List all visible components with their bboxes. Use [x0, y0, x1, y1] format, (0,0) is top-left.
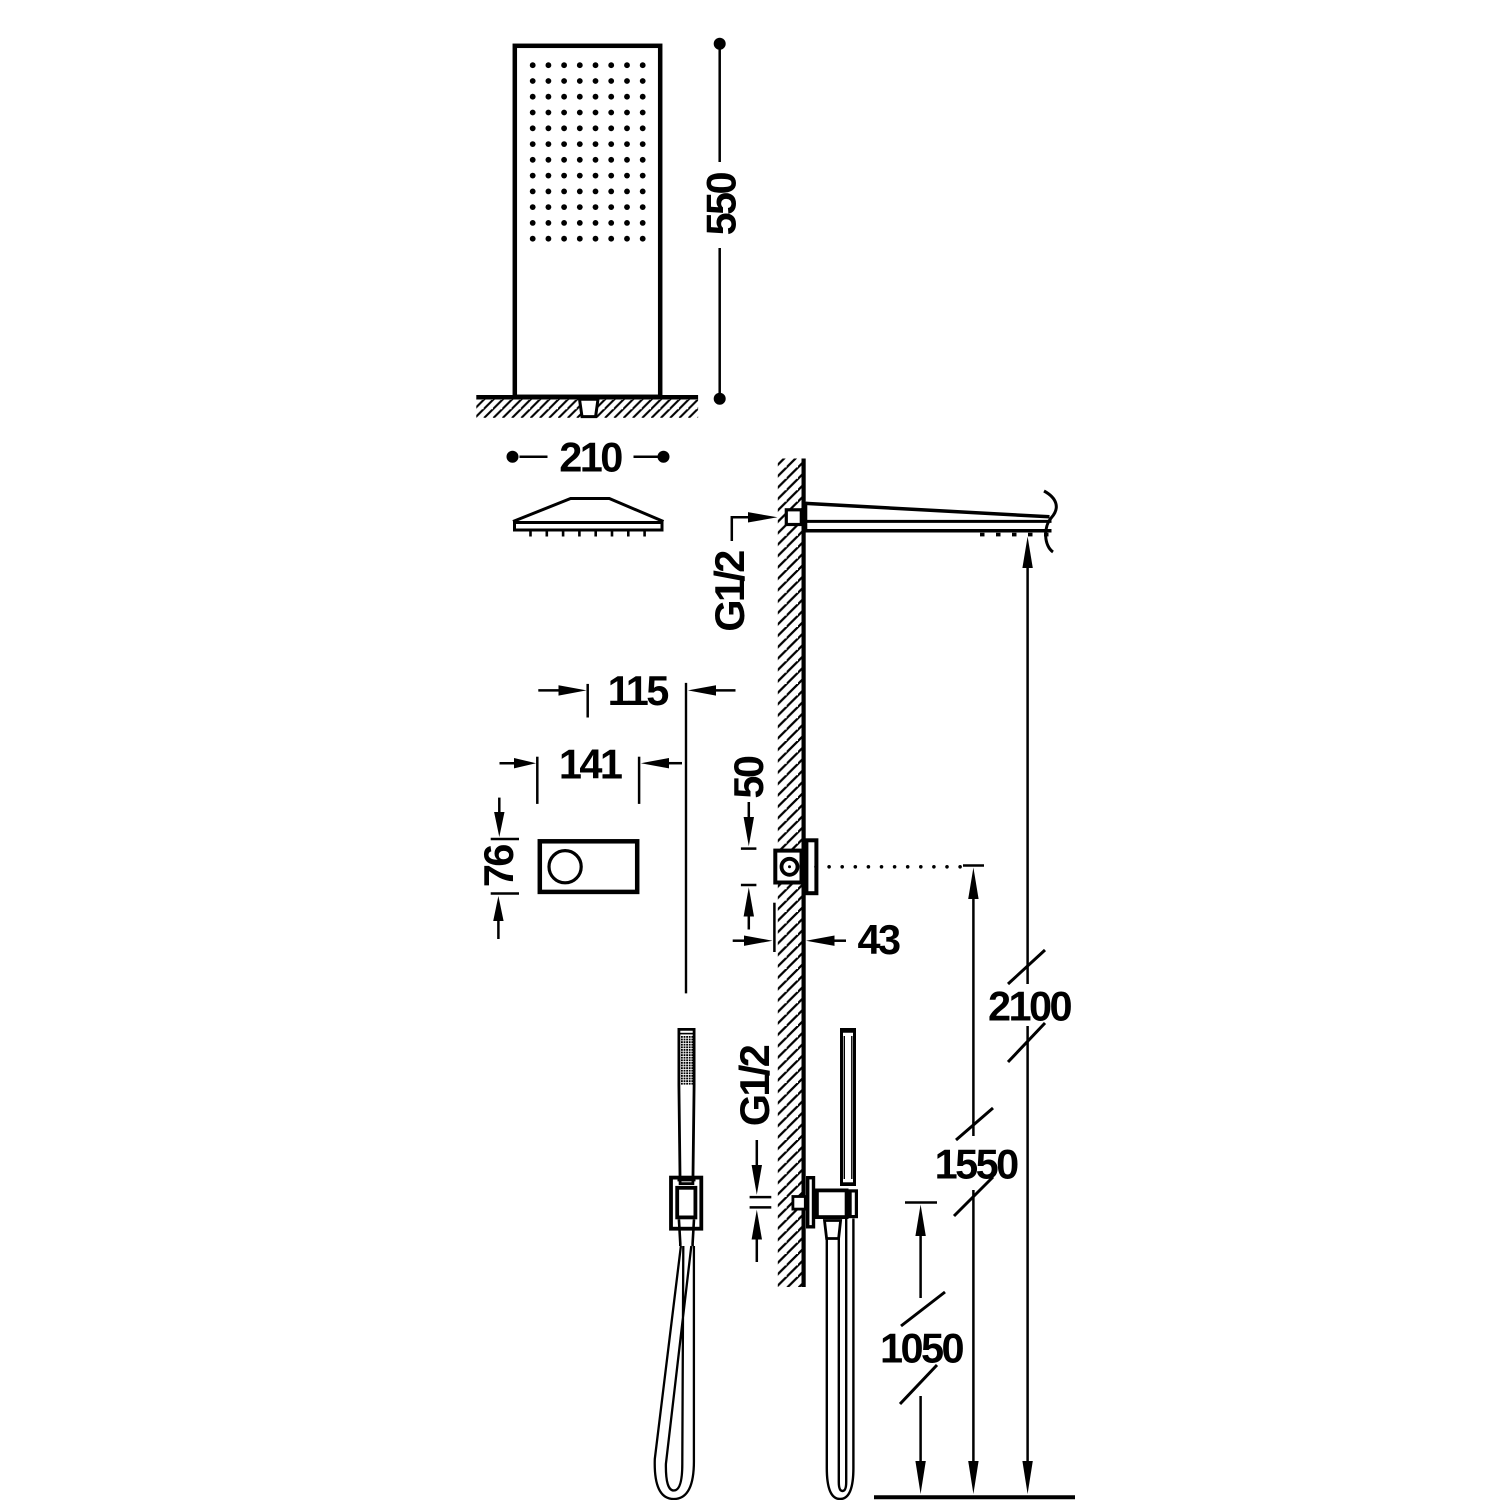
svg-text:2100: 2100	[988, 983, 1071, 1030]
svg-text:50: 50	[725, 756, 772, 798]
svg-text:1050: 1050	[880, 1325, 963, 1372]
svg-text:G1/2: G1/2	[706, 551, 753, 632]
svg-text:141: 141	[559, 741, 622, 788]
svg-text:210: 210	[559, 433, 622, 480]
svg-text:550: 550	[698, 172, 745, 235]
svg-text:G1/2: G1/2	[731, 1045, 778, 1126]
svg-text:76: 76	[475, 845, 522, 887]
svg-text:1550: 1550	[935, 1141, 1018, 1188]
svg-text:43: 43	[858, 916, 900, 963]
svg-text:115: 115	[608, 667, 669, 714]
